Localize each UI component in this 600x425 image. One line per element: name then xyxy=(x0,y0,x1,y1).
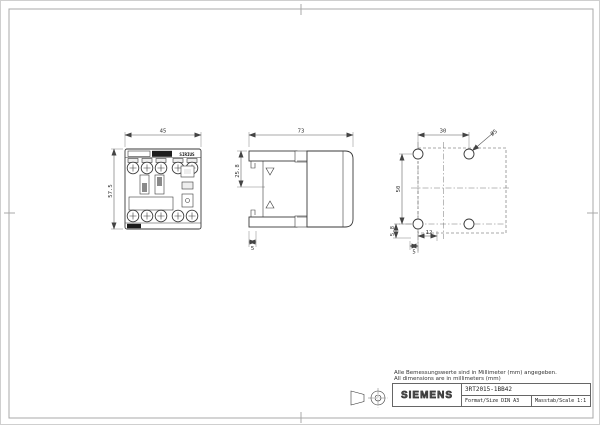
side-view: 73 25.8 5 xyxy=(235,129,353,253)
drill-view-geometry xyxy=(394,142,509,253)
drill-h-spacing-dim: 30 xyxy=(440,129,447,135)
title-block-fields: 3RT2015-1BB42 Format/Size DIN A3 Masstab… xyxy=(462,384,590,406)
drill-bottom-v-dim: 5 xyxy=(412,250,415,256)
side-clip-dim: 25.8 xyxy=(235,164,241,178)
part-number: 3RT2015-1BB42 xyxy=(462,384,590,396)
dimension-notes: Alle Bemessungswerte sind in Millimeter … xyxy=(394,370,594,382)
title-block: SIEMENS 3RT2015-1BB42 Format/Size DIN A3… xyxy=(392,383,591,407)
sirius-product-label: SIRIUS xyxy=(179,152,195,157)
front-height-dim: 57.5 xyxy=(108,184,114,197)
drill-v-spacing-dim: 50 xyxy=(396,186,402,193)
drawing-frame xyxy=(4,4,598,423)
note-english: All dimensions are in millimeters (mm) xyxy=(394,376,594,382)
drill-bottom-h-dim: 12 xyxy=(426,230,433,236)
title-block-bottom-row: Format/Size DIN A3 Masstab/Scale 1:1 xyxy=(462,396,590,407)
scale-field: Masstab/Scale 1:1 xyxy=(532,396,590,407)
front-view: 45 57.5 SIRIUS xyxy=(108,129,201,230)
drawing-sheet: 45 57.5 SIRIUS xyxy=(0,0,600,425)
drill-pattern-view: 30 Ø5 50 5.8 12 5 xyxy=(390,128,509,255)
front-width-dim: 45 xyxy=(160,129,167,135)
front-view-geometry: SIRIUS xyxy=(125,149,201,229)
drill-edge-dim: 5.8 xyxy=(390,225,396,236)
side-view-geometry xyxy=(249,151,353,227)
technical-drawing-canvas: 45 57.5 SIRIUS xyxy=(1,1,600,425)
projection-method-icon xyxy=(351,388,388,408)
drill-view-dimensions: 30 Ø5 50 5.8 12 5 xyxy=(390,128,499,255)
drill-hole-dia-dim: Ø5 xyxy=(489,128,499,138)
side-depth-dim: 73 xyxy=(298,129,305,135)
siemens-logo: SIEMENS xyxy=(393,384,462,406)
format-size-field: Format/Size DIN A3 xyxy=(462,396,532,407)
side-foot-dim: 5 xyxy=(251,246,254,252)
